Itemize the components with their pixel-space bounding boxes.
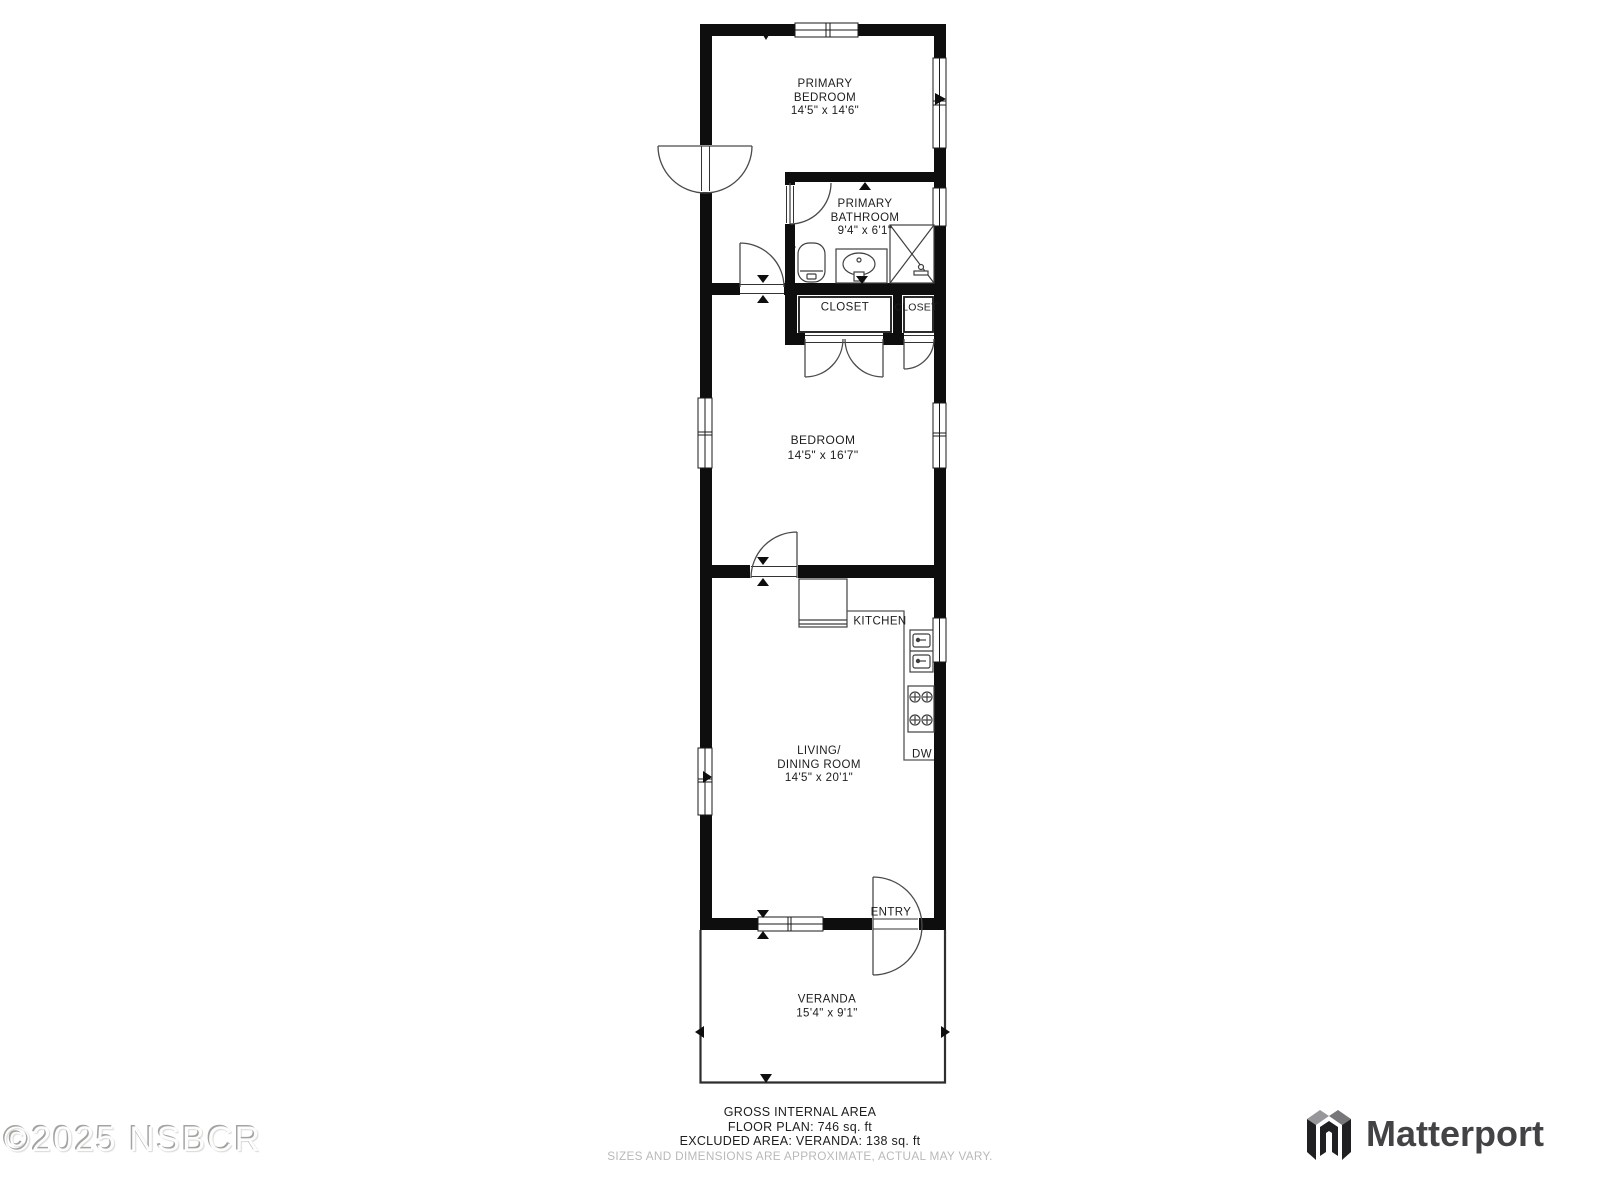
room-label-primary-bedroom: PRIMARY BEDROOM 14'5" x 14'6" (791, 78, 859, 119)
matterport-logo-icon (1303, 1106, 1355, 1162)
stove-icon (908, 686, 934, 732)
room-label-dishwasher: DW (912, 748, 932, 762)
door-primary-bedroom-hall (740, 243, 784, 296)
window-right-primary-bedroom (933, 58, 946, 148)
kitchen-fixtures (799, 579, 934, 760)
windows (698, 23, 946, 931)
room-label-entry: ENTRY (871, 906, 912, 920)
room-dimensions: 14'5" x 16'7" (787, 448, 858, 463)
room-name: VERANDA (796, 994, 857, 1008)
room-name: LIVING/ (777, 745, 861, 759)
room-label-closet-right: CLOSET (894, 301, 937, 315)
room-name: BEDROOM (787, 433, 858, 448)
room-name: BATHROOM (831, 211, 900, 225)
door-closet-left (805, 336, 883, 378)
wall-arrow (757, 931, 769, 939)
wall-arrow (859, 182, 871, 190)
matterport-logo-text: Matterport (1366, 1113, 1544, 1155)
room-label-bedroom: BEDROOM 14'5" x 16'7" (787, 433, 858, 463)
window-bottom-living (758, 917, 823, 931)
room-dimensions: 15'4" x 9'1" (796, 1007, 857, 1021)
door-entry (872, 877, 922, 975)
door-closet-right (904, 336, 934, 370)
matterport-logo: Matterport (1303, 1106, 1544, 1162)
room-name: PRIMARY (791, 78, 859, 92)
kitchen-sink-icon (910, 630, 933, 672)
room-name: BEDROOM (791, 91, 859, 105)
window-right-bathroom (933, 188, 946, 226)
window-top-primary-bedroom (795, 23, 858, 37)
window-left-bedroom (698, 398, 712, 468)
wall-arrow (757, 557, 769, 565)
wall-arrow (757, 295, 769, 303)
window-right-kitchen (933, 618, 946, 662)
room-dimensions: 14'5" x 20'1" (777, 772, 861, 786)
window-right-bedroom (933, 403, 946, 468)
wall-arrow (757, 578, 769, 586)
fridge-icon (799, 579, 847, 627)
door-bedroom (750, 532, 798, 579)
room-name: PRIMARY (831, 198, 900, 212)
toilet-icon (798, 243, 825, 282)
room-label-living-dining: LIVING/ DINING ROOM 14'5" x 20'1" (777, 745, 861, 786)
gross-internal-area-title: GROSS INTERNAL AREA (607, 1105, 993, 1120)
room-label-veranda: VERANDA 15'4" x 9'1" (796, 994, 857, 1021)
floor-plan-area: FLOOR PLAN: 746 sq. ft (607, 1120, 993, 1135)
room-label-primary-bathroom: PRIMARY BATHROOM 9'4" x 6'1" (831, 198, 900, 239)
room-name: DINING ROOM (777, 758, 861, 772)
footer-area-summary: GROSS INTERNAL AREA FLOOR PLAN: 746 sq. … (607, 1105, 993, 1163)
disclaimer: SIZES AND DIMENSIONS ARE APPROXIMATE, AC… (607, 1149, 993, 1164)
door-primary-bedroom-west (658, 145, 752, 193)
walls (700, 24, 946, 930)
room-label-kitchen: KITCHEN (853, 615, 906, 629)
door-primary-bathroom (784, 183, 831, 224)
excluded-area: EXCLUDED AREA: VERANDA: 138 sq. ft (607, 1134, 993, 1149)
wall-arrow (757, 275, 769, 283)
room-dimensions: 9'4" x 6'1" (831, 225, 900, 239)
copyright-watermark: ©2025 NSBCR (4, 1120, 262, 1160)
floorplan-page: PRIMARY BEDROOM 14'5" x 14'6" PRIMARY BA… (0, 0, 1600, 1200)
room-label-closet-left: CLOSET (821, 301, 869, 315)
room-dimensions: 14'5" x 14'6" (791, 105, 859, 119)
